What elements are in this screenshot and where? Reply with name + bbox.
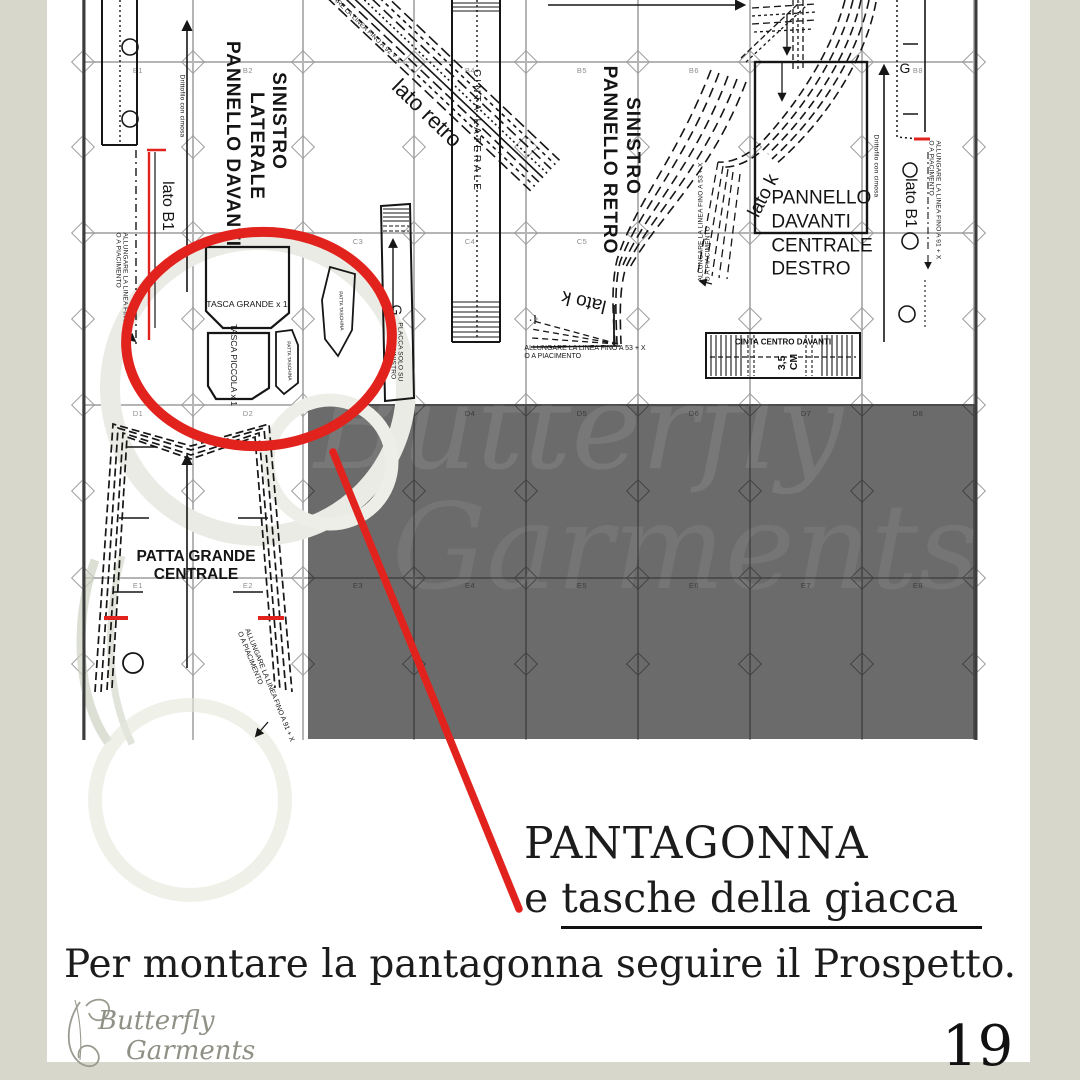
label-pannello-davanti-laterale-line2: LATERALE (245, 92, 267, 200)
label-tasca-piccola: TASCA PICCOLA x 1 (229, 324, 239, 406)
label-cinta-laterale: CINTA LATERALE (470, 69, 482, 193)
subtitle-prefix: e (524, 874, 561, 922)
watermark-garments-text: Garments (392, 478, 975, 616)
label-allungare-53-right: ALLUNGARE LA LINEA FINO A 53 + X O A PIA… (698, 163, 713, 282)
label-placca-strip: PLACCA SOLO SU PEZZO SINISTRO (389, 322, 404, 381)
label-pannello-retro-line1: PANNELLO RETRO (598, 66, 620, 255)
logo-butterfly-label: Butterfly (98, 1006, 215, 1036)
page-title: PANTAGONNA (524, 818, 869, 869)
label-pannello-centrale-destro: PANNELLO DAVANTI CENTRALE DESTRO (771, 187, 872, 282)
label-g-right: G (900, 60, 911, 76)
page-subtitle: e tasche della giacca (524, 874, 982, 922)
pattern-instruction-page: Butterfly Garments B1B2B4B5B6B8C2C3C4C5C… (0, 0, 1080, 1080)
page-number: 19 (942, 1014, 1013, 1079)
instruction-sentence: Per montare la pantagonna seguire il Pro… (64, 942, 1016, 987)
label-drittofilo-right: Drittofilo con cimosa (872, 135, 879, 198)
label-pannello-davanti-laterale-line3: SINISTRO (267, 72, 289, 170)
logo-garments-label: Garments (126, 1036, 255, 1066)
label-lato-b1-left: lato B1 (158, 181, 176, 231)
label-pannello-davanti-laterale-line1: PANNELLO DAVANTI (221, 41, 243, 247)
label-g-strip: G (389, 305, 405, 316)
label-drittofilo-left: Drittofilo con cimosa (178, 75, 185, 138)
label-misura-35cm: 3,5 CM (776, 354, 800, 370)
label-allungare-53-bottom: ALLUNGARE LA LINEA FINO A 53 + X O A PIA… (524, 345, 645, 361)
label-tasca-grande: TASCA GRANDE x 1 (206, 299, 287, 309)
label-cinta-centro: CINTA CENTRO DAVANTI (735, 337, 831, 346)
label-lato-b1-right: lato B1 (901, 178, 919, 228)
label-patta-grande: PATTA GRANDE CENTRALE (136, 548, 255, 584)
label-pannello-retro-line2: SINISTRO (621, 97, 643, 195)
label-allungare-91-right: ALLUNGARE LA LINEA FINO A 91 + X O A PIA… (927, 141, 942, 260)
gray-watermark-panel: Butterfly Garments (308, 404, 975, 739)
subtitle-underlined: tasche della giacca (561, 874, 982, 929)
label-allungare-91-left: ALLUNGARE LA LINEA FINO A 91 + X O A PIA… (114, 233, 129, 352)
